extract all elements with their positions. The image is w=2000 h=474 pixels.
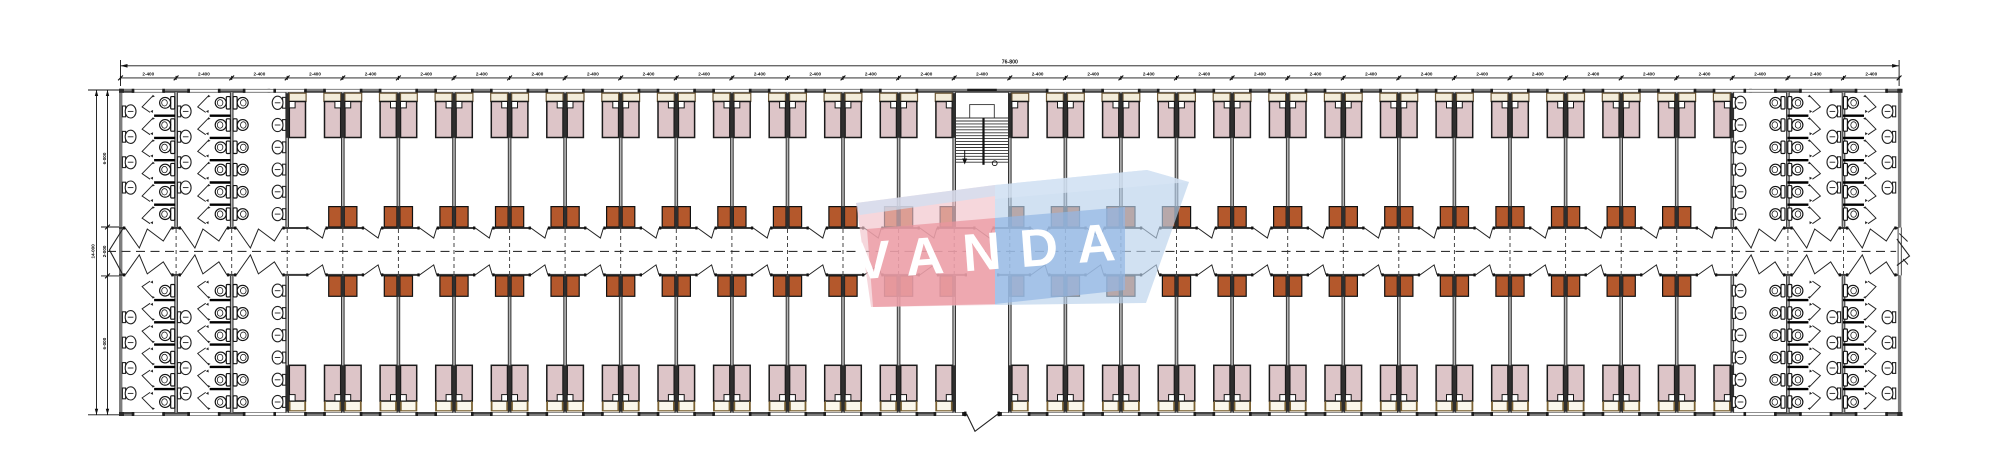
- svg-text:2-400: 2-400: [809, 72, 821, 77]
- svg-text:2-400: 2-400: [643, 72, 655, 77]
- svg-text:2-400: 2-400: [865, 72, 877, 77]
- svg-text:2-400: 2-400: [1198, 72, 1210, 77]
- svg-text:2-400: 2-400: [754, 72, 766, 77]
- svg-text:2-400: 2-400: [532, 72, 544, 77]
- svg-text:2-400: 2-400: [1699, 72, 1711, 77]
- svg-text:2-400: 2-400: [1588, 72, 1600, 77]
- svg-text:2-400: 2-400: [254, 72, 266, 77]
- svg-text:2-400: 2-400: [1365, 72, 1377, 77]
- svg-text:2-400: 2-400: [1254, 72, 1266, 77]
- svg-text:2-400: 2-400: [921, 72, 933, 77]
- svg-text:2-400: 2-400: [698, 72, 710, 77]
- svg-text:2-400: 2-400: [1476, 72, 1488, 77]
- svg-text:2-400: 2-400: [365, 72, 377, 77]
- svg-text:2-400: 2-400: [420, 72, 432, 77]
- svg-text:2-400: 2-400: [587, 72, 599, 77]
- svg-text:2-400: 2-400: [1643, 72, 1655, 77]
- svg-text:2-400: 2-400: [309, 72, 321, 77]
- svg-text:2-400: 2-400: [1532, 72, 1544, 77]
- svg-text:2-400: 2-400: [142, 72, 154, 77]
- svg-text:2-400: 2-400: [1810, 72, 1822, 77]
- svg-text:2-400: 2-400: [1087, 72, 1099, 77]
- svg-text:14-000: 14-000: [91, 244, 96, 259]
- svg-text:2-400: 2-400: [198, 72, 210, 77]
- svg-text:2-400: 2-400: [1310, 72, 1322, 77]
- svg-text:2-400: 2-400: [1865, 72, 1877, 77]
- svg-text:2-400: 2-400: [1143, 72, 1155, 77]
- svg-text:6-000: 6-000: [102, 337, 107, 349]
- svg-text:2-400: 2-400: [476, 72, 488, 77]
- svg-text:76-800: 76-800: [1002, 60, 1018, 66]
- svg-text:2-400: 2-400: [1754, 72, 1766, 77]
- svg-text:2-400: 2-400: [976, 72, 988, 77]
- svg-text:2-000: 2-000: [102, 245, 107, 257]
- svg-text:6-000: 6-000: [102, 152, 107, 164]
- svg-text:2-400: 2-400: [1421, 72, 1433, 77]
- svg-text:2-400: 2-400: [1032, 72, 1044, 77]
